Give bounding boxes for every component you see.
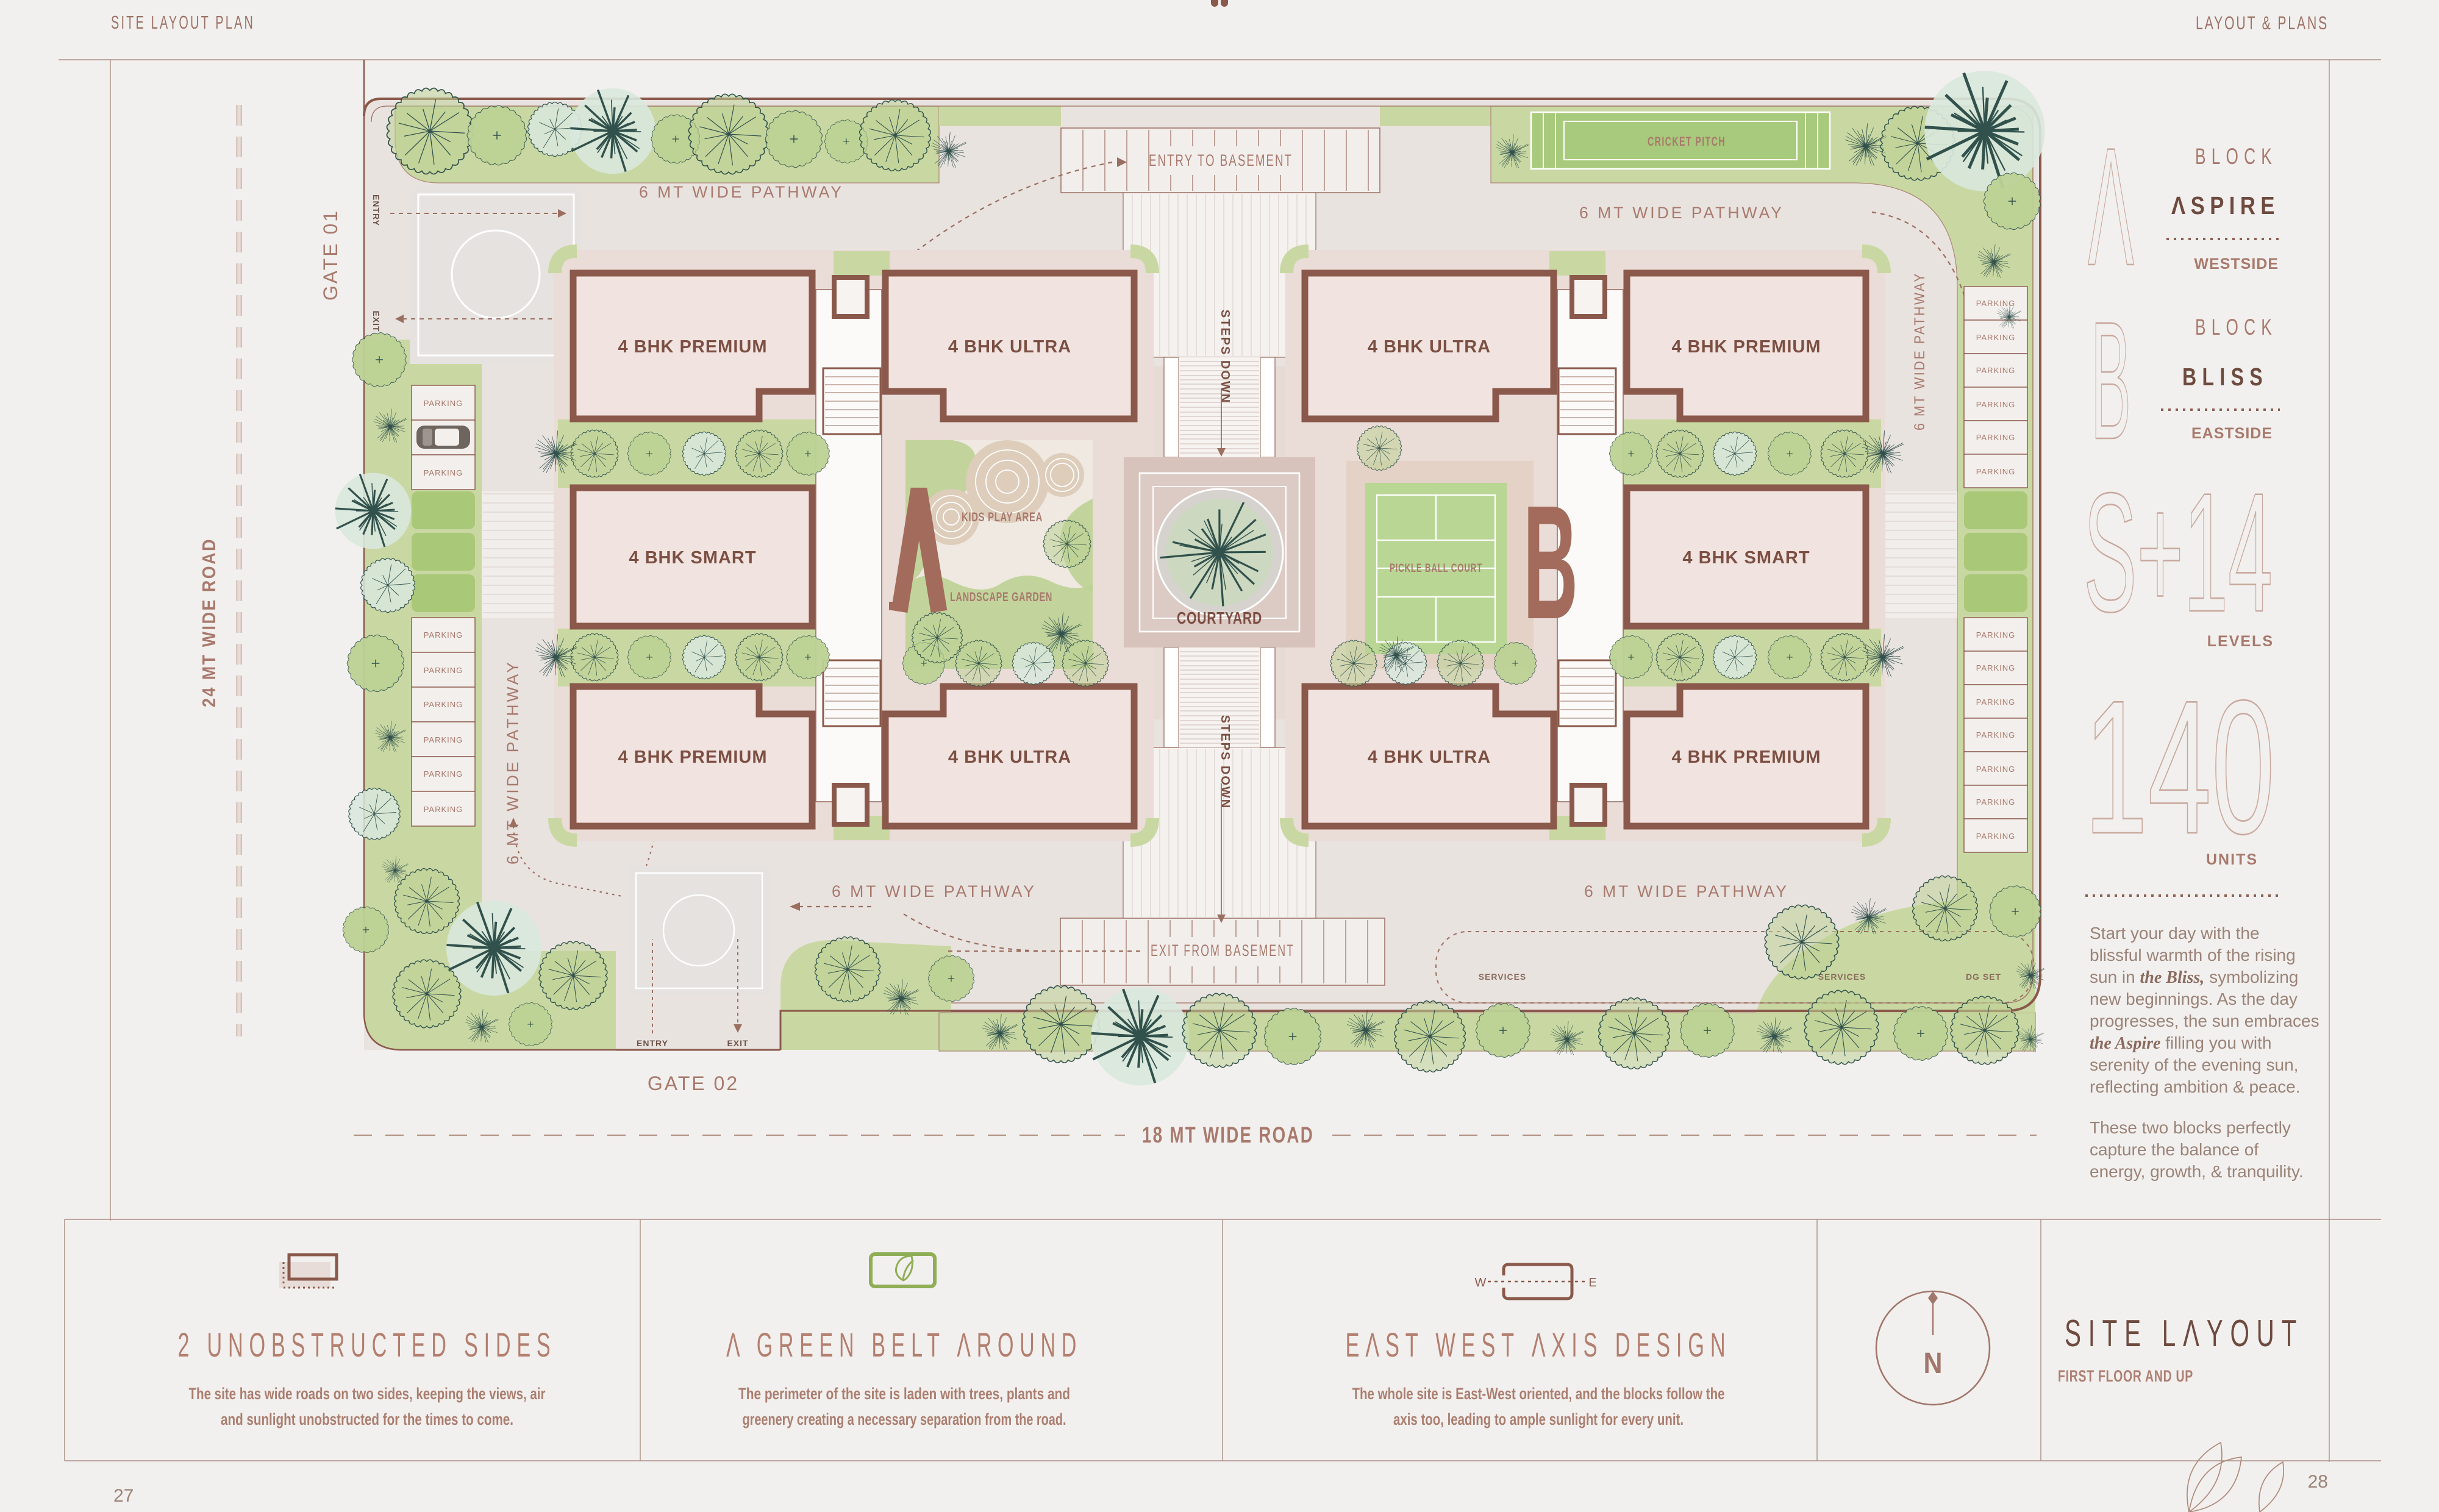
svg-text:PARKING: PARKING [424,399,463,408]
svg-text:PARKING: PARKING [1976,433,2016,442]
svg-text:4 BHK ULTRA: 4 BHK ULTRA [1368,747,1491,767]
svg-text:4 BHK PREMIUM: 4 BHK PREMIUM [618,747,767,767]
svg-text:EXIT: EXIT [371,310,381,332]
svg-text:serenity of the evening sun,: serenity of the evening sun, [2090,1055,2298,1074]
svg-text:27: 27 [113,1486,134,1506]
svg-text:PICKLE BALL COURT: PICKLE BALL COURT [1390,562,1482,575]
svg-text:GATE 01: GATE 01 [320,209,341,301]
svg-text:ΛSPIRE: ΛSPIRE [2171,191,2280,219]
svg-text:S+14: S+14 [2084,457,2273,647]
svg-text:BLISS: BLISS [2182,363,2268,391]
svg-text:PARKING: PARKING [1976,400,2016,409]
svg-text:PARKING: PARKING [424,630,463,640]
svg-text:UNITS: UNITS [2206,851,2258,868]
svg-text:4 BHK SMART: 4 BHK SMART [1682,548,1810,568]
svg-text:PARKING: PARKING [1976,730,2016,740]
svg-text:BLOCK: BLOCK [2195,144,2277,169]
svg-text:PARKING: PARKING [1976,797,2016,807]
svg-text:6 MT WIDE PATHWAY: 6 MT WIDE PATHWAY [1579,204,1784,222]
svg-text:PARKING: PARKING [1976,765,2016,774]
svg-text:LEVELS: LEVELS [2207,633,2274,650]
svg-text:PARKING: PARKING [424,468,463,477]
svg-text:4 BHK ULTRA: 4 BHK ULTRA [1368,337,1491,357]
svg-text:18 MT WIDE ROAD: 18 MT WIDE ROAD [1142,1122,1314,1147]
svg-text:EASTSIDE: EASTSIDE [2191,425,2273,442]
svg-text:capture the balance of: capture the balance of [2090,1140,2259,1159]
svg-text:PARKING: PARKING [424,666,463,675]
svg-text:COURTYARD: COURTYARD [1177,608,1262,627]
svg-text:140: 140 [2084,661,2275,874]
svg-text:EΛST WEST ΛXIS DESIGN: EΛST WEST ΛXIS DESIGN [1346,1325,1732,1364]
svg-text:4 BHK ULTRA: 4 BHK ULTRA [948,337,1071,357]
svg-text:Λ: Λ [2088,113,2134,301]
svg-text:N: N [1924,1347,1943,1380]
svg-text:PARKING: PARKING [424,700,463,709]
svg-text:new beginnings. As the day: new beginnings. As the day [2090,990,2298,1008]
svg-text:energy, growth, & tranquility.: energy, growth, & tranquility. [2090,1162,2304,1181]
svg-text:Start your day with the: Start your day with the [2090,924,2260,943]
svg-text:PARKING: PARKING [1976,697,2016,707]
svg-text:EXIT: EXIT [727,1038,748,1048]
svg-text:E: E [1588,1276,1596,1289]
svg-text:These two blocks perfectly: These two blocks perfectly [2090,1118,2291,1137]
svg-text:The whole site is East-West or: The whole site is East-West oriented, an… [1352,1385,1725,1403]
svg-text:6 MT WIDE PATHWAY: 6 MT WIDE PATHWAY [639,183,844,201]
svg-text:ENTRY: ENTRY [637,1038,668,1048]
svg-text:28: 28 [2308,1472,2328,1492]
svg-text:STEPS DOWN: STEPS DOWN [1218,715,1232,809]
svg-text:ENTRY TO BASEMENT: ENTRY TO BASEMENT [1149,151,1293,169]
svg-text:PARKING: PARKING [424,735,463,744]
svg-text:W: W [1475,1276,1487,1289]
svg-text:SERVICES: SERVICES [1818,972,1866,982]
svg-text:SERVICES: SERVICES [1479,972,1527,982]
svg-text:and sunlight unobstructed for: and sunlight unobstructed for the times … [221,1410,513,1428]
svg-text:LANDSCAPE GARDEN: LANDSCAPE GARDEN [950,590,1052,604]
svg-text:4 BHK PREMIUM: 4 BHK PREMIUM [1671,337,1821,357]
svg-text:GATE 02: GATE 02 [648,1072,739,1094]
svg-text:PARKING: PARKING [1976,366,2016,375]
svg-text:ENTRY: ENTRY [371,194,381,226]
svg-text:The perimeter of the site is l: The perimeter of the site is laden with … [738,1385,1070,1403]
svg-text:PARKING: PARKING [1976,333,2016,342]
svg-text:PARKING: PARKING [1976,832,2016,841]
svg-text:the Aspire filling you with: the Aspire filling you with [2090,1033,2272,1053]
svg-text:4 BHK SMART: 4 BHK SMART [629,548,756,568]
svg-text:PARKING: PARKING [1976,467,2016,476]
svg-text:PARKING: PARKING [424,805,463,814]
svg-text:reflecting ambition & peace.: reflecting ambition & peace. [2090,1077,2301,1096]
svg-text:blissful warmth of the rising: blissful warmth of the rising [2090,946,2296,965]
svg-text:progresses, the sun embraces: progresses, the sun embraces [2090,1011,2319,1030]
svg-text:STEPS DOWN: STEPS DOWN [1218,310,1232,404]
svg-text:2 UNOBSTRUCTED SIDES: 2 UNOBSTRUCTED SIDES [178,1325,557,1364]
svg-text:axis too, leading to ample sun: axis too, leading to ample sunlight for … [1393,1410,1684,1428]
svg-text:4 BHK PREMIUM: 4 BHK PREMIUM [1671,747,1821,767]
svg-text:CRICKET PITCH: CRICKET PITCH [1648,135,1726,149]
svg-text:SITE LAYOUT PLAN: SITE LAYOUT PLAN [111,12,255,33]
svg-text:24 MT WIDE ROAD: 24 MT WIDE ROAD [198,538,220,707]
svg-text:WESTSIDE: WESTSIDE [2194,255,2279,273]
svg-text:KIDS PLAY AREA: KIDS PLAY AREA [962,510,1043,524]
svg-text:Λ GREEN BELT ΛROUND: Λ GREEN BELT ΛROUND [726,1325,1082,1364]
svg-text:PARKING: PARKING [424,769,463,779]
svg-text:DG SET: DG SET [1966,972,2001,982]
svg-text:greenery creating a necessary: greenery creating a necessary separation… [743,1410,1066,1428]
svg-text:6 MT WIDE PATHWAY: 6 MT WIDE PATHWAY [832,882,1037,900]
svg-text:6 MT WIDE PATHWAY: 6 MT WIDE PATHWAY [504,660,522,865]
svg-text:LAYOUT & PLANS: LAYOUT & PLANS [2196,12,2329,34]
svg-text:The site has wide roads on two: The site has wide roads on two sides, ke… [189,1385,546,1403]
svg-text:B: B [1523,472,1578,653]
svg-text:EXIT FROM BASEMENT: EXIT FROM BASEMENT [1151,941,1294,960]
svg-text:6 MT WIDE PATHWAY: 6 MT WIDE PATHWAY [1584,882,1789,900]
svg-text:PARKING: PARKING [1976,663,2016,672]
svg-text:BLOCK: BLOCK [2195,315,2277,340]
svg-text:PARKING: PARKING [1976,299,2016,308]
svg-text:FIRST FLOOR AND UP: FIRST FLOOR AND UP [2058,1367,2193,1385]
svg-text:4 BHK ULTRA: 4 BHK ULTRA [948,747,1071,767]
svg-text:6 MT WIDE PATHWAY: 6 MT WIDE PATHWAY [1912,272,1928,430]
svg-text:PARKING: PARKING [1976,630,2016,640]
svg-text:B: B [2091,287,2131,474]
svg-text:SITE LΛYOUT: SITE LΛYOUT [2065,1313,2304,1355]
svg-text:4 BHK PREMIUM: 4 BHK PREMIUM [618,337,767,357]
svg-text:sun in the Bliss, symbolizing: sun in the Bliss, symbolizing [2090,968,2298,987]
